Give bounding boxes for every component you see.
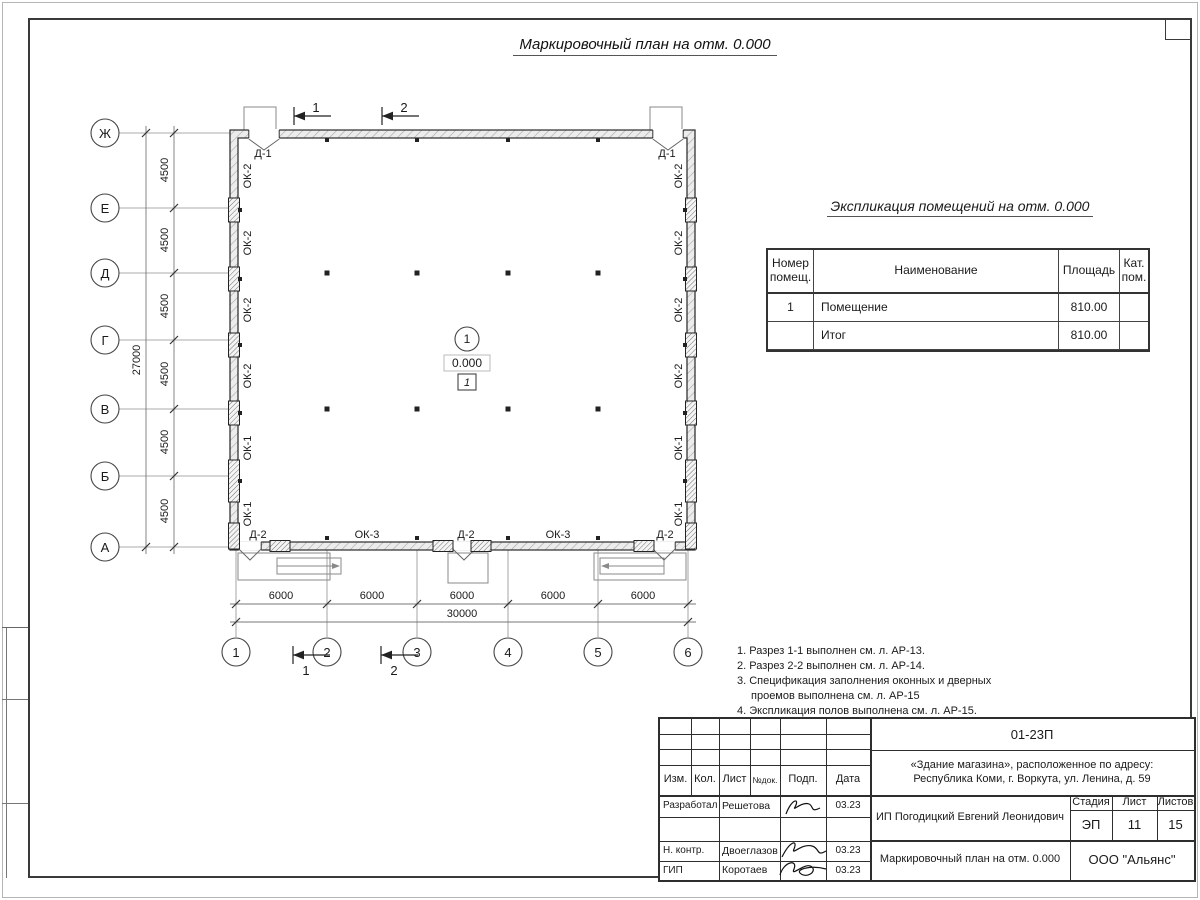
window-label: ОК-1 [242,436,254,461]
section-marks: 1 2 1 2 [293,100,419,678]
dim-4500: 4500 [159,499,171,523]
axis-row-label: Е [101,201,110,216]
col-header-area: Площадь [1059,250,1120,294]
tb-line [660,749,870,750]
window-label: ОК-3 [546,529,571,541]
explication-title: Экспликация помещений на отм. 0.000 [810,198,1110,214]
signature-developer [782,796,824,818]
window-label: ОК-2 [673,231,685,256]
axis-col-label: 6 [684,645,691,660]
drawing-title-text: Маркировочный план на отм. 0.000 [513,36,776,56]
door-label: Д-1 [254,148,271,160]
note-item: 2. Разрез 2-2 выполнен см. л. АР-14. [737,659,999,674]
window-label: ОК-2 [673,364,685,389]
tb-name-gip: Коротаев [719,861,780,880]
tb-stage-label: Стадия [1070,795,1112,810]
door-label: Д-1 [658,148,675,160]
tb-line [660,734,870,735]
window-label: ОК-1 [673,436,685,461]
axis-col-label: 3 [413,645,420,660]
tb-sheets-label: Листов [1157,795,1194,810]
axis-col-label: 4 [504,645,511,660]
section-number: 2 [400,100,407,115]
tb-company: ООО "Альянс" [1070,840,1194,880]
window-label: ОК-2 [242,164,254,189]
notes-list: 1. Разрез 1-1 выполнен см. л. АР-13. 2. … [737,644,999,719]
tb-header-ndok: №док. [750,765,780,795]
cell-total-category [1120,322,1148,350]
tb-object-address: «Здание магазина», расположенное по адре… [870,750,1194,795]
cell-total-label: Итог [814,322,1059,350]
title-block: Изм. Кол. Лист №док. Подп. Дата Разработ… [658,717,1196,882]
ramp-arrow-right [332,563,340,569]
floor-type-number: 1 [464,377,470,389]
axis-row-label: А [101,540,110,555]
section-number: 1 [302,663,309,678]
explication-title-text: Экспликация помещений на отм. 0.000 [827,198,1094,217]
explication-table: Номер помещ. Наименование Площадь Кат. п… [766,248,1150,352]
room-elevation: 0.000 [452,356,482,370]
door-label: Д-2 [656,529,673,541]
axis-col-label: 2 [323,645,330,660]
signature-gip [776,857,830,881]
tb-header-list: Лист [719,765,750,795]
dim-6000: 6000 [541,590,565,602]
ramp-arrow-left [601,563,609,569]
left-dimension-labels: 4500 4500 4500 4500 4500 4500 27000 [131,158,171,523]
cell-room-number: 1 [768,294,814,322]
axis-row-label: Б [101,469,110,484]
tb-role-developer: Разработал [660,795,719,817]
window-label: ОК-1 [242,502,254,527]
axis-row-label: В [101,402,110,417]
tb-date-ncontr: 03.23 [826,841,870,861]
cell-room-name: Помещение [814,294,1059,322]
tb-stage-value: ЭП [1070,810,1112,840]
row-axis-bubbles: Ж Е Д Г В Б А [91,119,119,561]
cell-room-category [1120,294,1148,322]
col-header-room-number: Номер помещ. [768,250,814,294]
tb-role-gip: ГИП [660,861,719,880]
room-marker: 1 0.000 1 [444,327,490,390]
dim-6000: 6000 [269,590,293,602]
tb-address-line1: «Здание магазина», расположенное по адре… [911,759,1154,772]
cell-room-area: 810.00 [1059,294,1120,322]
door-label: Д-2 [457,529,474,541]
window-label: ОК-2 [673,164,685,189]
drawing-title: Маркировочный план на отм. 0.000 [420,36,870,53]
section-number: 2 [390,663,397,678]
tb-sheet-label: Лист [1112,795,1157,810]
window-label: ОК-2 [242,298,254,323]
dim-30000: 30000 [447,608,478,620]
window-label: ОК-2 [242,364,254,389]
axis-col-label: 1 [232,645,239,660]
tb-role-ncontr: Н. контр. [660,841,719,861]
dim-6000: 6000 [631,590,655,602]
tb-name-developer: Решетова [719,795,780,817]
axis-col-label: 5 [594,645,601,660]
col-header-category: Кат. пом. [1120,250,1148,294]
dim-4500: 4500 [159,294,171,318]
window-label: ОК-3 [355,529,380,541]
tb-date-developer: 03.23 [826,795,870,817]
col-axis-bubbles: 1 2 3 4 5 6 [222,638,702,666]
section-number: 1 [312,100,319,115]
tb-sheet-value: 11 [1112,810,1157,840]
tb-header-kol: Кол. [691,765,719,795]
exterior-walls [230,130,695,550]
dim-6000: 6000 [450,590,474,602]
axis-row-label: Г [101,333,108,348]
tb-address-line2: Республика Коми, г. Воркута, ул. Ленина,… [913,773,1150,786]
window-label: ОК-2 [242,231,254,256]
cell-total-area: 810.00 [1059,322,1120,350]
window-label: ОК-1 [673,502,685,527]
tb-line [660,817,870,818]
col-header-name: Наименование [814,250,1059,294]
door-label: Д-2 [249,529,266,541]
dim-4500: 4500 [159,158,171,182]
cell-total-number [768,322,814,350]
tb-header-data: Дата [826,765,870,795]
row-axis-lines [119,133,233,547]
tb-sheets-value: 15 [1157,810,1194,840]
note-item: 1. Разрез 1-1 выполнен см. л. АР-13. [737,644,999,659]
wall-pilasters [238,138,687,540]
dim-27000: 27000 [131,345,143,376]
tb-date-gip: 03.23 [826,861,870,880]
tb-client: ИП Погодицкий Евгений Леонидович [870,795,1070,840]
tb-document-code: 01-23П [870,719,1194,750]
axis-row-label: Д [101,266,110,281]
dim-4500: 4500 [159,362,171,386]
room-number: 1 [464,332,471,346]
dim-6000: 6000 [360,590,384,602]
tb-drawing-name: Маркировочный план на отм. 0.000 [870,840,1070,880]
tb-name-ncontr: Двоеглазов [719,841,780,861]
porches [238,107,686,583]
door-openings [239,129,683,560]
axis-row-label: Ж [99,126,111,141]
drawing-sheet: 4500 4500 4500 4500 4500 4500 27000 6000… [0,0,1200,900]
dim-4500: 4500 [159,228,171,252]
tb-header-podp: Подп. [780,765,826,795]
dim-4500: 4500 [159,430,171,454]
window-label: ОК-2 [673,298,685,323]
tb-header-izm: Изм. [660,765,691,795]
note-item: 3. Спецификация заполнения оконных и две… [737,674,999,704]
